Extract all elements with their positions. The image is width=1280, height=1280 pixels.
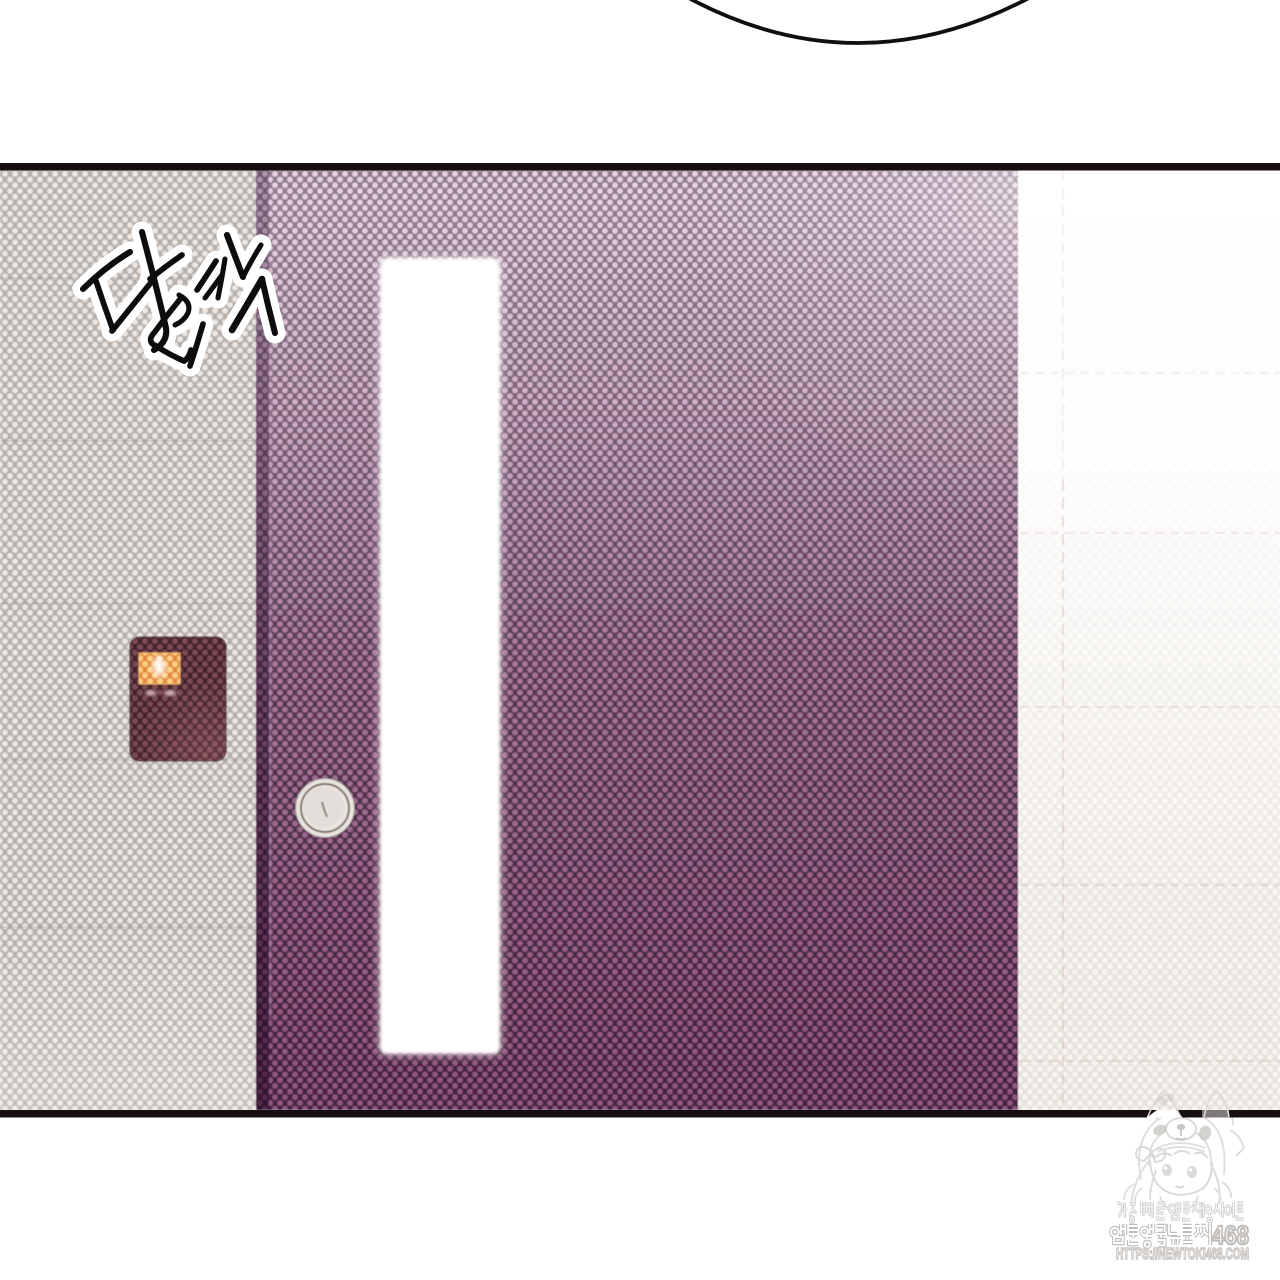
svg-text:HTTPS://NEWTOKI468.COM: HTTPS://NEWTOKI468.COM bbox=[1116, 1246, 1249, 1263]
